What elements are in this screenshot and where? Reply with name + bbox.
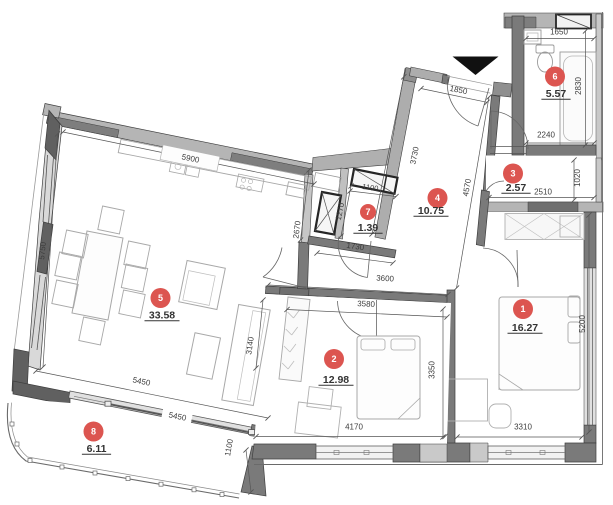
svg-text:2240: 2240 xyxy=(537,131,555,140)
svg-text:1.39: 1.39 xyxy=(358,222,379,234)
svg-text:2510: 2510 xyxy=(534,188,552,197)
svg-text:6: 6 xyxy=(552,72,557,82)
svg-text:7: 7 xyxy=(365,207,370,217)
svg-text:6.11: 6.11 xyxy=(87,443,107,455)
svg-text:3: 3 xyxy=(510,169,515,179)
svg-text:1: 1 xyxy=(520,304,525,314)
svg-text:3600: 3600 xyxy=(376,274,395,284)
svg-text:1020: 1020 xyxy=(573,169,582,187)
svg-text:3350: 3350 xyxy=(428,361,437,379)
svg-text:8: 8 xyxy=(91,427,96,437)
svg-text:2.57: 2.57 xyxy=(506,182,527,194)
svg-text:5200: 5200 xyxy=(578,315,587,333)
svg-text:2: 2 xyxy=(331,354,336,364)
svg-text:16.27: 16.27 xyxy=(512,322,538,334)
svg-text:4170: 4170 xyxy=(345,423,363,432)
svg-text:10.75: 10.75 xyxy=(418,205,444,217)
svg-text:3580: 3580 xyxy=(357,299,376,309)
svg-text:5: 5 xyxy=(158,293,163,303)
svg-text:5750: 5750 xyxy=(37,241,48,260)
svg-text:2830: 2830 xyxy=(574,77,583,95)
svg-text:3310: 3310 xyxy=(514,423,532,432)
svg-text:4: 4 xyxy=(435,193,440,203)
svg-text:33.58: 33.58 xyxy=(149,310,175,322)
svg-text:1650: 1650 xyxy=(550,28,568,37)
svg-text:5.57: 5.57 xyxy=(546,88,567,100)
svg-text:12.98: 12.98 xyxy=(323,374,349,386)
